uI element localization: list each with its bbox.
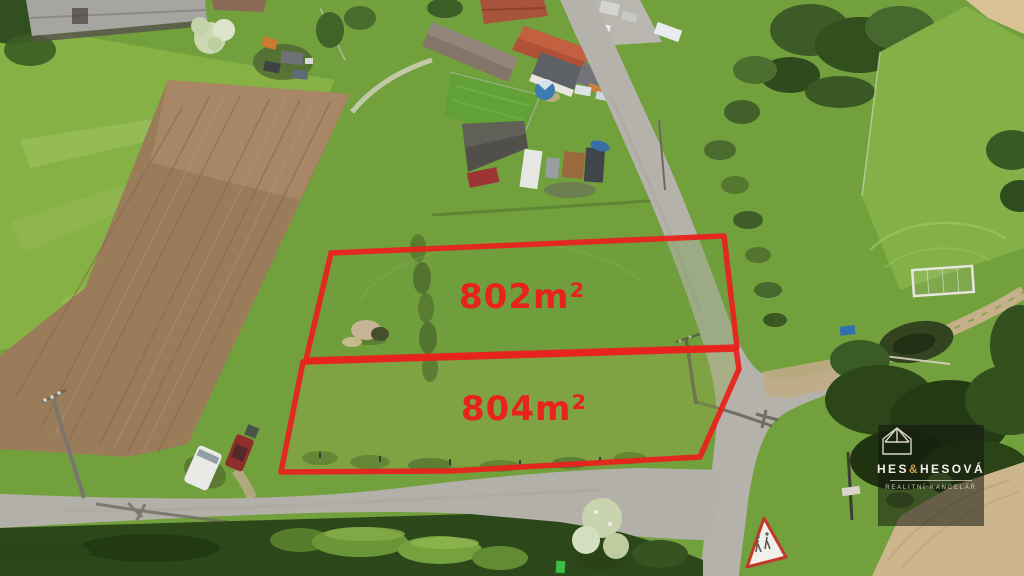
watermark-divider [890, 480, 972, 481]
parcel-label-802: 802m² [459, 277, 585, 317]
agency-watermark: HES&HESOVÁ REALITNÍ KANCELÁŘ [878, 425, 984, 526]
parcel-label-804: 804m² [461, 389, 587, 429]
house-roof-icon [878, 425, 916, 457]
farm-building-roof [212, 0, 266, 12]
photo-scene: 802m² 804m² [0, 0, 1024, 576]
ampersand: & [909, 462, 920, 476]
agency-name: HES&HESOVÁ [877, 463, 985, 475]
aerial-listing-photo: 802m² 804m² HES&HESOVÁ REALITNÍ KANCELÁŘ [0, 0, 1024, 576]
football-goal [912, 266, 974, 296]
green-bin [556, 561, 566, 573]
blue-sign [840, 325, 856, 336]
agency-tagline: REALITNÍ KANCELÁŘ [885, 485, 977, 491]
